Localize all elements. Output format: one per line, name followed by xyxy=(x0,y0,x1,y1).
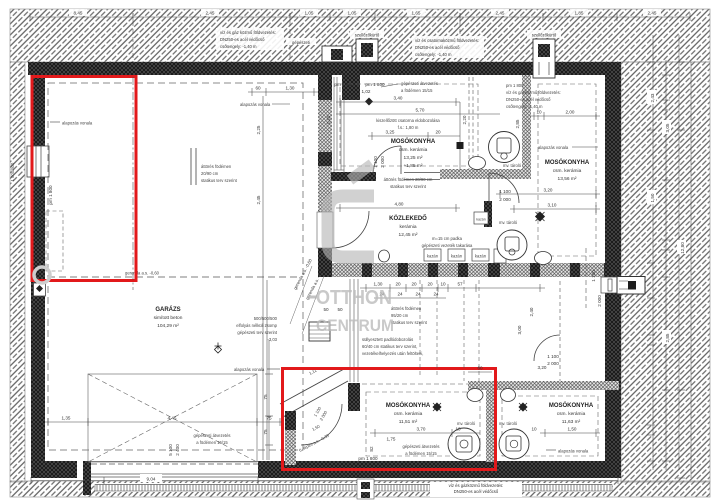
svg-text:10: 10 xyxy=(531,427,537,432)
svg-text:1,30: 1,30 xyxy=(374,282,383,287)
svg-text:10: 10 xyxy=(440,282,446,287)
svg-text:57: 57 xyxy=(457,282,463,287)
svg-text:csőtengely: -1,40 m: csőtengely: -1,40 m xyxy=(220,44,257,49)
svg-text:víz és gáz közmű földvezetés:: víz és gáz közmű földvezetés: xyxy=(220,30,276,35)
svg-text:MOSÓKONYHA: MOSÓKONYHA xyxy=(549,401,594,409)
svg-text:csm. kerámia: csm. kerámia xyxy=(553,168,582,174)
svg-text:4,80: 4,80 xyxy=(395,202,404,207)
svg-text:1,05: 1,05 xyxy=(305,11,314,16)
svg-text:3,10: 3,10 xyxy=(548,203,557,208)
svg-text:20: 20 xyxy=(411,282,417,287)
svg-text:a födémen 15/15: a födémen 15/15 xyxy=(401,88,433,93)
svg-text:gépészeti vezeték takarása: gépészeti vezeték takarása xyxy=(422,243,473,248)
svg-text:süllyesztett padlódobozolás: süllyesztett padlódobozolás xyxy=(362,337,413,342)
svg-text:alapozás vonala: alapozás vonala xyxy=(234,367,265,372)
svg-text:OTTHON: OTTHON xyxy=(316,287,392,309)
svg-text:2,85: 2,85 xyxy=(515,119,520,128)
svg-text:2,45: 2,45 xyxy=(496,11,505,16)
svg-text:1,85: 1,85 xyxy=(575,11,584,16)
svg-text:m=15 cm padka: m=15 cm padka xyxy=(432,236,463,241)
svg-text:60/40 cm statikus terv szerint: 60/40 cm statikus terv szerint, xyxy=(362,344,417,349)
svg-text:f.s.: 1,80 m: f.s.: 1,80 m xyxy=(398,125,419,130)
svg-text:kiszellőzött csatorna eldobozo: kiszellőzött csatorna eldobozolása xyxy=(376,118,440,123)
svg-text:simított beton: simított beton xyxy=(154,315,183,321)
svg-text:1 100: 1 100 xyxy=(591,270,596,282)
svg-text:20: 20 xyxy=(395,282,401,287)
svg-text:1,75: 1,75 xyxy=(387,437,396,442)
svg-text:1 100: 1 100 xyxy=(499,189,511,194)
svg-text:1 000/500: 1 000/500 xyxy=(10,162,15,181)
svg-text:20: 20 xyxy=(427,282,433,287)
svg-text:75: 75 xyxy=(263,429,268,435)
svg-text:pm 1 800: pm 1 800 xyxy=(358,456,378,461)
svg-text:KÖZLEKEDŐ: KÖZLEKEDŐ xyxy=(389,215,427,222)
svg-text:1 100: 1 100 xyxy=(373,156,378,168)
svg-text:pm 1 800: pm 1 800 xyxy=(506,83,524,88)
svg-text:DN250-es acél védőcső: DN250-es acél védőcső xyxy=(506,97,551,102)
svg-text:12,45 m²: 12,45 m² xyxy=(399,232,418,238)
svg-text:2,25: 2,25 xyxy=(256,125,261,134)
svg-text:pm 1 800: pm 1 800 xyxy=(365,82,385,87)
svg-text:DN250-es acél védőcső: DN250-es acél védőcső xyxy=(454,489,499,494)
svg-text:statikus terv szerint: statikus terv szerint xyxy=(391,320,428,325)
svg-text:2,20: 2,20 xyxy=(326,115,331,124)
svg-text:10: 10 xyxy=(349,96,355,101)
svg-text:pm 1 400: pm 1 400 xyxy=(334,82,354,87)
svg-text:3,25: 3,25 xyxy=(386,130,395,135)
svg-text:csőtengely: -1,40 m: csőtengely: -1,40 m xyxy=(415,52,452,57)
svg-text:2,45: 2,45 xyxy=(648,11,657,16)
svg-text:áttörés födémen: áttörés födémen xyxy=(201,164,232,169)
svg-text:statikus terv szerint: statikus terv szerint xyxy=(201,178,238,183)
svg-text:pm 1 800: pm 1 800 xyxy=(48,185,53,205)
svg-text:+1,85 m²: +1,85 m² xyxy=(403,163,422,169)
svg-text:2 000: 2 000 xyxy=(380,156,385,168)
svg-text:DN250-es acél védőcső: DN250-es acél védőcső xyxy=(220,37,265,42)
svg-text:szellőzőkürtő: szellőzőkürtő xyxy=(532,33,557,38)
svg-text:mv. tároló: mv. tároló xyxy=(503,163,522,168)
svg-text:13,56 m²: 13,56 m² xyxy=(558,176,577,182)
svg-text:8,45: 8,45 xyxy=(74,11,83,16)
svg-text:áttörés födémen 20/90 cm: áttörés födémen 20/90 cm xyxy=(384,177,433,182)
svg-text:500/500/500: 500/500/500 xyxy=(254,316,278,321)
svg-text:mv. tároló: mv. tároló xyxy=(457,421,476,426)
svg-text:2 000: 2 000 xyxy=(499,197,511,202)
svg-text:DN250-es acél védőcső: DN250-es acél védőcső xyxy=(415,45,460,50)
svg-text:statikus terv szerint: statikus terv szerint xyxy=(390,184,427,189)
svg-text:3,20: 3,20 xyxy=(544,188,553,193)
svg-text:20/90 cm: 20/90 cm xyxy=(201,171,219,176)
svg-text:gépészeti átvezetés: gépészeti átvezetés xyxy=(193,433,230,438)
svg-text:kazán: kazán xyxy=(451,254,463,259)
svg-text:1,50: 1,50 xyxy=(568,427,577,432)
svg-text:alapozás vonala: alapozás vonala xyxy=(558,449,589,454)
svg-text:GARÁZS: GARÁZS xyxy=(155,306,180,313)
svg-text:60: 60 xyxy=(255,86,261,91)
svg-text:60: 60 xyxy=(477,366,483,371)
svg-text:áttörés födémen: áttörés födémen xyxy=(391,306,422,311)
svg-text:2,45: 2,45 xyxy=(206,11,215,16)
svg-text:12,80: 12,80 xyxy=(680,242,685,254)
svg-text:csm. kerámia: csm. kerámia xyxy=(394,411,423,417)
svg-text:3,05: 3,05 xyxy=(665,123,670,132)
svg-text:3,00: 3,00 xyxy=(517,325,522,334)
svg-text:CENTRUM: CENTRUM xyxy=(316,316,394,335)
svg-text:2 000: 2 000 xyxy=(597,295,602,307)
svg-text:gépészeti terv szerint: gépészeti terv szerint xyxy=(237,330,277,335)
svg-text:1,05: 1,05 xyxy=(348,11,357,16)
svg-text:MOSÓKONYHA: MOSÓKONYHA xyxy=(545,158,590,166)
svg-text:kazán: kazán xyxy=(475,254,487,259)
svg-text:1,35: 1,35 xyxy=(62,416,71,421)
svg-text:kazán: kazán xyxy=(427,254,439,259)
svg-text:2,20: 2,20 xyxy=(462,115,467,124)
svg-text:mv. tároló: mv. tároló xyxy=(499,421,518,426)
svg-text:2,40: 2,40 xyxy=(529,307,534,316)
svg-text:alapozás vonala: alapozás vonala xyxy=(62,121,93,126)
svg-text:3,40: 3,40 xyxy=(394,96,403,101)
svg-text:gerenda a.s. -0,60: gerenda a.s. -0,60 xyxy=(125,271,160,276)
svg-text:5,70: 5,70 xyxy=(416,108,425,113)
svg-text:11,51 m²: 11,51 m² xyxy=(399,419,418,425)
svg-text:10: 10 xyxy=(536,110,542,115)
svg-text:82: 82 xyxy=(369,446,374,452)
svg-text:gépészeti: gépészeti xyxy=(292,40,310,45)
svg-text:1,02: 1,02 xyxy=(362,89,371,94)
svg-text:elfolyás nélküli zsomp: elfolyás nélküli zsomp xyxy=(236,323,277,328)
svg-text:gépészeti átvezetés: gépészeti átvezetés xyxy=(401,81,438,86)
svg-text:csm. kerámia: csm. kerámia xyxy=(557,411,586,417)
svg-text:MOSÓKONYHA: MOSÓKONYHA xyxy=(386,401,431,409)
svg-text:2,00: 2,00 xyxy=(566,110,575,115)
svg-text:csőtengely: -1,40 m: csőtengely: -1,40 m xyxy=(506,104,543,109)
svg-text:75: 75 xyxy=(266,416,272,421)
svg-text:mv. tároló: mv. tároló xyxy=(499,220,518,225)
svg-text:a födémen 15/15: a födémen 15/15 xyxy=(196,440,228,445)
svg-text:13,25 m²: 13,25 m² xyxy=(404,155,423,161)
svg-text:1,65: 1,65 xyxy=(412,11,421,16)
svg-text:5 100: 5 100 xyxy=(168,444,173,456)
svg-text:kazán: kazán xyxy=(476,218,486,222)
svg-text:11,63 m²: 11,63 m² xyxy=(562,419,581,425)
svg-text:2,43: 2,43 xyxy=(650,93,655,102)
svg-text:alapozás vonala: alapozás vonala xyxy=(240,102,271,107)
svg-text:4,45: 4,45 xyxy=(168,416,177,421)
svg-text:kerámia: kerámia xyxy=(399,224,416,230)
svg-text:10: 10 xyxy=(455,427,461,432)
svg-text:csm. kerámia: csm. kerámia xyxy=(399,147,428,153)
svg-text:24: 24 xyxy=(397,292,403,297)
svg-text:1 100: 1 100 xyxy=(547,354,559,359)
svg-text:104,29 m²: 104,29 m² xyxy=(157,323,179,329)
svg-text:víz és csatornaközmű földvezet: víz és csatornaközmű földvezetés: xyxy=(415,38,479,43)
svg-text:vezetékelhelyezés után feltölt: vezetékelhelyezés után feltölteni, xyxy=(362,351,423,356)
svg-text:szellőzőkürtő: szellőzőkürtő xyxy=(355,33,380,38)
svg-text:2 400: 2 400 xyxy=(175,444,180,456)
svg-text:alapozás vonala: alapozás vonala xyxy=(538,145,569,150)
svg-text:2,45: 2,45 xyxy=(256,195,261,204)
svg-text:2,85: 2,85 xyxy=(665,333,670,342)
svg-text:3,70: 3,70 xyxy=(417,427,426,432)
svg-text:víz és gázközmű földvezetés:: víz és gázközmű földvezetés: xyxy=(449,483,504,488)
svg-text:20: 20 xyxy=(435,130,441,135)
svg-text:24: 24 xyxy=(433,292,439,297)
svg-text:1,50: 1,50 xyxy=(650,193,655,202)
svg-text:9,04: 9,04 xyxy=(147,477,156,482)
svg-text:3,20: 3,20 xyxy=(538,365,547,370)
svg-text:MOSÓKONYHA: MOSÓKONYHA xyxy=(391,137,436,145)
svg-text:gépészeti átvezetés: gépészeti átvezetés xyxy=(402,444,439,449)
svg-text:a födémen 15/15: a födémen 15/15 xyxy=(405,451,437,456)
svg-text:2 000: 2 000 xyxy=(547,361,559,366)
svg-text:víz és gázközmű földvezetés:: víz és gázközmű földvezetés: xyxy=(506,90,561,95)
svg-text:1,30: 1,30 xyxy=(286,86,295,91)
svg-text:75: 75 xyxy=(263,394,268,400)
